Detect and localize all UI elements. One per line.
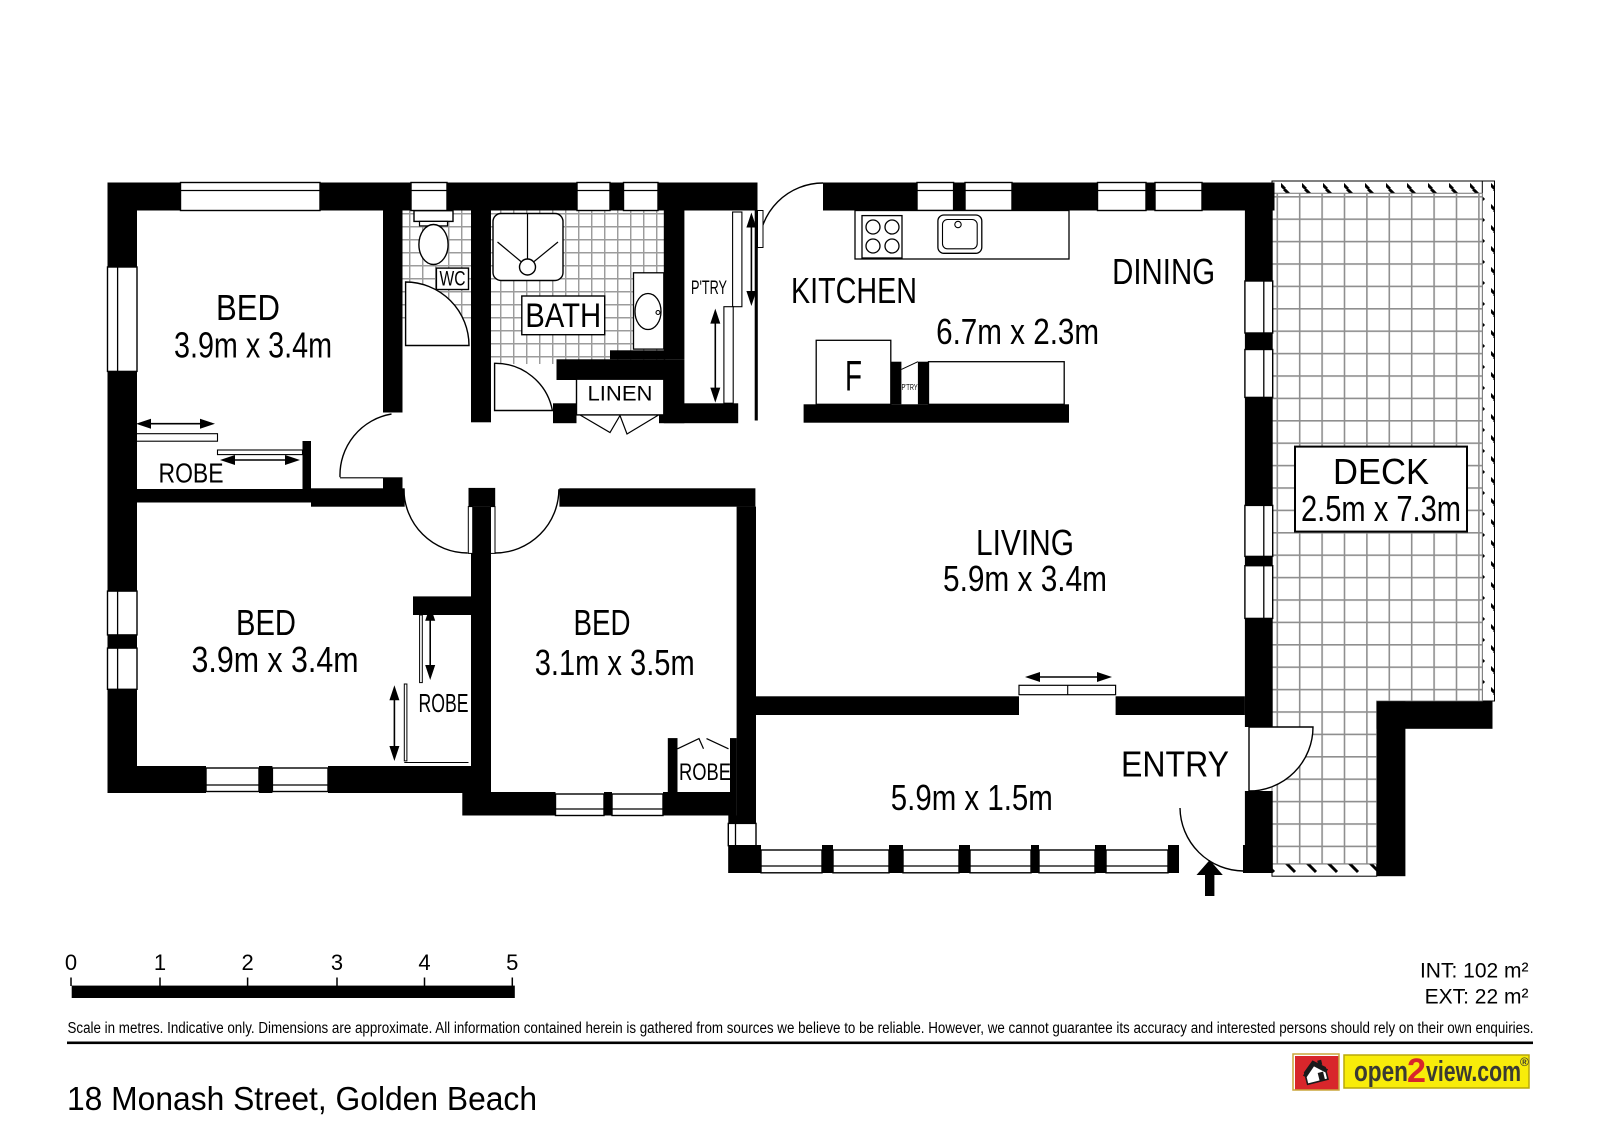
- svg-text:DECK: DECK: [1333, 451, 1429, 492]
- svg-text:BED: BED: [216, 287, 280, 328]
- svg-text:BED: BED: [236, 602, 296, 643]
- svg-text:®: ®: [1520, 1055, 1529, 1069]
- svg-text:LINEN: LINEN: [588, 383, 653, 406]
- svg-text:WC: WC: [440, 268, 466, 291]
- svg-text:view.com: view.com: [1426, 1056, 1521, 1088]
- svg-text:BATH: BATH: [525, 297, 601, 335]
- svg-text:F: F: [845, 353, 862, 401]
- svg-text:3.1m x 3.5m: 3.1m x 3.5m: [535, 642, 695, 683]
- svg-text:ROBE: ROBE: [159, 458, 224, 489]
- svg-text:1: 1: [154, 950, 166, 975]
- svg-text:2.5m x 7.3m: 2.5m x 7.3m: [1301, 488, 1461, 529]
- svg-text:P'TRY: P'TRY: [691, 278, 727, 299]
- svg-text:6.7m x 2.3m: 6.7m x 2.3m: [936, 311, 1099, 352]
- svg-text:18 Monash Street, Golden Beach: 18 Monash Street, Golden Beach: [67, 1080, 537, 1117]
- svg-text:Scale in metres. Indicative on: Scale in metres. Indicative only. Dimens…: [68, 1020, 1534, 1037]
- svg-text:5.9m x 3.4m: 5.9m x 3.4m: [943, 558, 1107, 599]
- svg-text:DINING: DINING: [1112, 251, 1215, 292]
- svg-text:INT: 102 m²: INT: 102 m²: [1420, 960, 1529, 983]
- svg-text:open: open: [1354, 1056, 1408, 1088]
- svg-text:0: 0: [65, 950, 77, 975]
- svg-text:P'TRY: P'TRY: [902, 383, 918, 392]
- svg-text:5.9m x 1.5m: 5.9m x 1.5m: [891, 777, 1053, 818]
- svg-text:4: 4: [418, 950, 430, 975]
- svg-text:3.9m x 3.4m: 3.9m x 3.4m: [174, 325, 332, 366]
- svg-text:EXT: 22 m²: EXT: 22 m²: [1425, 986, 1529, 1009]
- svg-text:3: 3: [331, 950, 343, 975]
- svg-text:5: 5: [506, 950, 518, 975]
- svg-text:2: 2: [241, 950, 253, 975]
- svg-text:LIVING: LIVING: [976, 522, 1074, 563]
- svg-text:ENTRY: ENTRY: [1121, 744, 1229, 785]
- svg-text:ROBE: ROBE: [679, 759, 731, 786]
- svg-text:BED: BED: [574, 602, 631, 643]
- svg-text:2: 2: [1407, 1052, 1426, 1090]
- svg-text:KITCHEN: KITCHEN: [791, 270, 917, 311]
- svg-text:ROBE: ROBE: [419, 688, 469, 718]
- svg-text:3.9m x 3.4m: 3.9m x 3.4m: [192, 639, 359, 680]
